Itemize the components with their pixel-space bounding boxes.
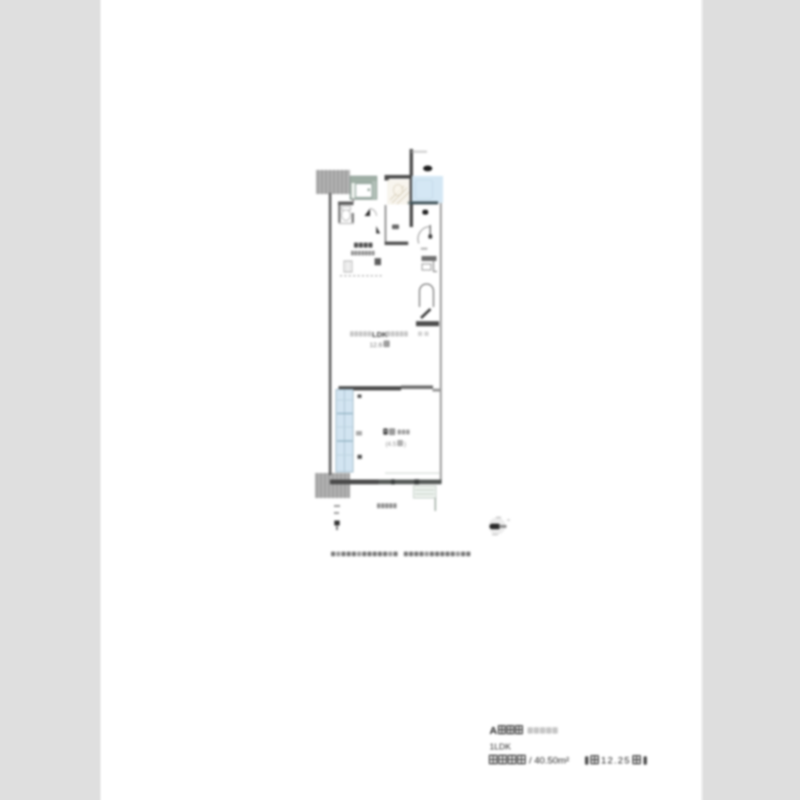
svg-text:(4.5: (4.5	[386, 441, 397, 448]
svg-text:A: A	[490, 725, 498, 737]
svg-text:12.6: 12.6	[370, 342, 383, 349]
svg-text:): )	[404, 441, 406, 448]
svg-text:1LDK: 1LDK	[490, 742, 512, 752]
svg-text:12.25: 12.25	[601, 756, 631, 767]
svg-text:/ 40.50m²: / 40.50m²	[529, 756, 569, 767]
svg-text:LDK: LDK	[372, 330, 388, 339]
